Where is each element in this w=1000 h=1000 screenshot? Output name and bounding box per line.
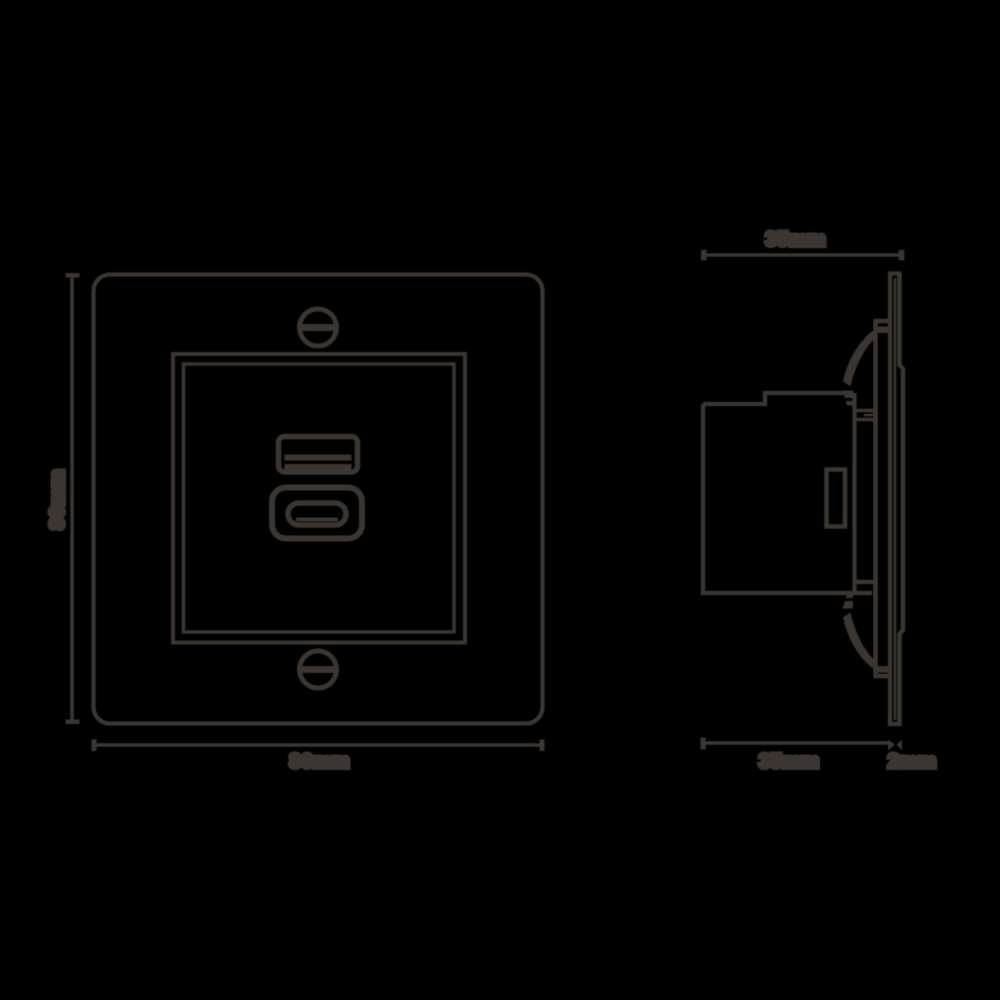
svg-text:86mm: 86mm	[289, 750, 350, 773]
svg-text:35mm: 35mm	[765, 228, 826, 251]
svg-text:86mm: 86mm	[46, 469, 69, 530]
svg-text:35mm: 35mm	[759, 750, 820, 773]
svg-text:2mm: 2mm	[887, 750, 936, 773]
